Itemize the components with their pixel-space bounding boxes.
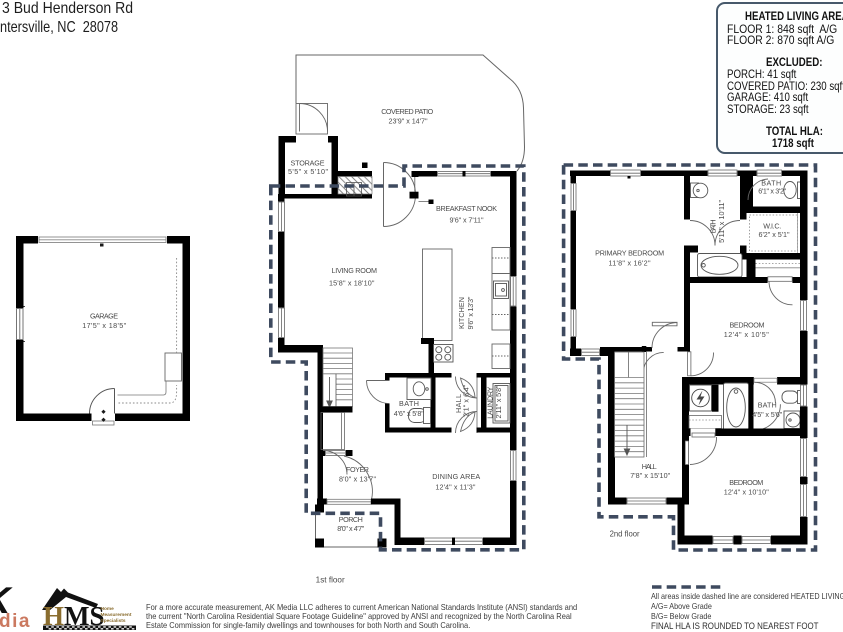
svg-text:5'11" x 10'11": 5'11" x 10'11" [717, 199, 726, 242]
svg-text:6'1" x 3'2": 6'1" x 3'2" [758, 186, 786, 195]
svg-text:2nd floor: 2nd floor [610, 530, 640, 539]
svg-text:COVERED PATIO: COVERED PATIO [381, 107, 433, 116]
svg-text:BEDROOM: BEDROOM [730, 320, 765, 329]
svg-text:23'9" x 14'7": 23'9" x 14'7" [389, 116, 428, 125]
svg-text:KITCHEN: KITCHEN [457, 297, 466, 329]
svg-text:9'6" x 13'3": 9'6" x 13'3" [466, 296, 475, 329]
svg-text:2'1" x 6'4": 2'1" x 6'4" [462, 384, 471, 416]
svg-text:BATH: BATH [758, 400, 777, 409]
svg-text:15'8" x 18'10": 15'8" x 18'10" [329, 279, 375, 288]
svg-text:Home: Home [101, 606, 115, 612]
svg-text:Measurement: Measurement [101, 612, 132, 618]
svg-text:BREAKFAST NOOK: BREAKFAST NOOK [436, 204, 497, 213]
svg-text:GARAGE: GARAGE [90, 311, 118, 320]
svg-text:7'8" x 15'10": 7'8" x 15'10" [630, 471, 670, 480]
svg-text:4'5" x 5'6": 4'5" x 5'6" [752, 410, 782, 419]
svg-text:BEDROOM: BEDROOM [729, 478, 763, 487]
svg-text:17'5" x 18'5": 17'5" x 18'5" [82, 321, 126, 330]
svg-text:12'4" x 10'10": 12'4" x 10'10" [724, 488, 769, 497]
svg-text:4'6" x 5'8": 4'6" x 5'8" [394, 409, 424, 418]
svg-text:12'4" x 11'3": 12'4" x 11'3" [435, 482, 475, 491]
svg-text:BATH: BATH [399, 399, 419, 408]
svg-text:11'8" x 16'2": 11'8" x 16'2" [609, 259, 651, 268]
svg-text:PRIMARY BEDROOM: PRIMARY BEDROOM [595, 249, 664, 258]
svg-text:1st floor: 1st floor [316, 575, 345, 584]
svg-text:5'5" x 5'10": 5'5" x 5'10" [288, 167, 328, 176]
svg-text:DINING AREA: DINING AREA [432, 472, 480, 481]
svg-text:LIVING ROOM: LIVING ROOM [331, 266, 377, 275]
svg-text:8'0" x 4'7": 8'0" x 4'7" [337, 524, 364, 533]
svg-text:2'11" x 5'8": 2'11" x 5'8" [494, 385, 503, 418]
svg-text:12'4" x 10'5": 12'4" x 10'5" [724, 330, 769, 339]
svg-text:BATH: BATH [708, 219, 717, 233]
svg-text:PORCH: PORCH [339, 515, 363, 524]
svg-text:HALL: HALL [642, 462, 657, 471]
svg-text:STORAGE: STORAGE [291, 158, 325, 167]
svg-text:6'2" x 5'1": 6'2" x 5'1" [759, 230, 790, 239]
svg-text:dia: dia [0, 611, 31, 632]
svg-text:Specialists: Specialists [101, 618, 126, 624]
svg-text:9'6" x 7'11": 9'6" x 7'11" [450, 215, 484, 224]
